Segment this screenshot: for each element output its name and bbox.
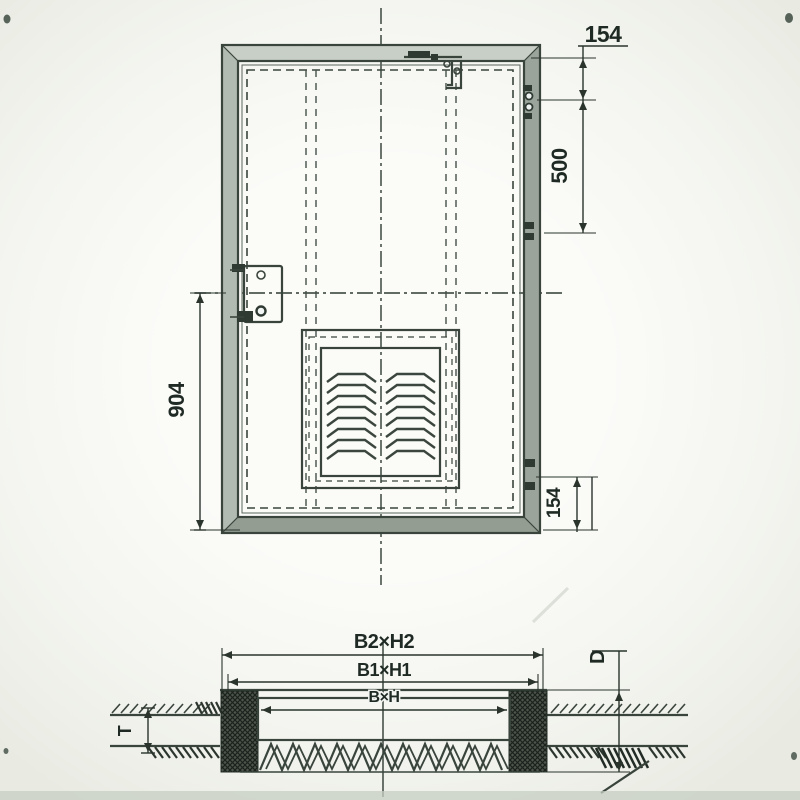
dimension-154-bottom: 154 [536, 477, 598, 532]
dim-label-500: 500 [547, 148, 572, 183]
leaf-edge-dashed [247, 70, 513, 508]
dim-label-b2h2: B2×H2 [354, 631, 415, 653]
weld-leader [601, 761, 649, 793]
bulkhead-right [547, 704, 688, 793]
dim-label-154-top: 154 [585, 21, 623, 47]
door-drawing-svg: 154 500 154 904 [0, 0, 800, 800]
dimension-500: 500 [544, 100, 596, 233]
gasket-block-right [509, 691, 547, 772]
technical-drawing-canvas: 154 500 154 904 [0, 0, 800, 800]
dim-label-bh: B×H [369, 689, 400, 706]
dim-label-depth: D [587, 650, 609, 664]
front-view: 154 500 154 904 [164, 8, 628, 585]
dim-label-904: 904 [164, 381, 189, 417]
dim-label-154-bottom: 154 [544, 487, 565, 518]
dimension-154-top: 154 [531, 21, 628, 100]
section-view: B2×H2 B1×H1 B×H D T [110, 631, 688, 797]
gasket-block-left [221, 691, 258, 772]
dim-label-thickness: T [115, 725, 135, 736]
dimension-bh: B×H [261, 689, 507, 710]
dim-label-b1h1: B1×H1 [357, 660, 412, 680]
